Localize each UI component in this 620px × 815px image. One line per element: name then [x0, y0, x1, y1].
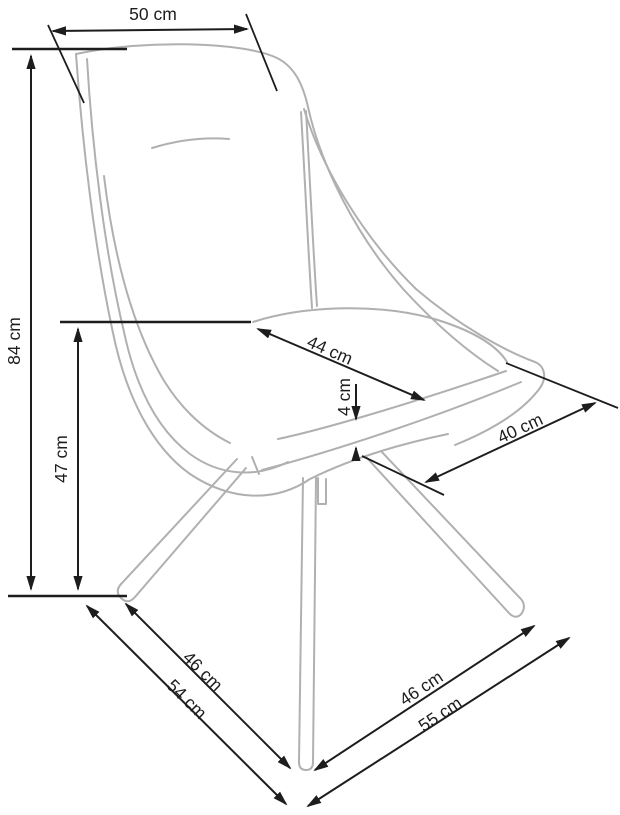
seat-cushion-bottom-seam	[278, 371, 506, 439]
extension-tick-upper	[506, 363, 618, 408]
extension-tick-lower	[362, 456, 444, 495]
armrest-seam	[104, 176, 230, 443]
extension-tick-left	[48, 25, 84, 103]
dim-overall-height: 84 cm	[4, 49, 127, 589]
seat-cushion-top-edge	[253, 308, 507, 362]
diagram-canvas: 50 cm 84 cm 47 cm 44 cm	[0, 0, 620, 815]
chair-dimension-diagram: 50 cm 84 cm 47 cm 44 cm	[0, 0, 620, 815]
dimension-arrow	[315, 626, 534, 770]
dimension-annotations: 50 cm 84 cm 47 cm 44 cm	[4, 4, 618, 806]
dim-label-back-width: 50 cm	[129, 4, 177, 24]
dim-label-seat-height: 47 cm	[51, 435, 71, 483]
dim-label-seat-depth: 40 cm	[494, 409, 546, 447]
dim-seat-height: 47 cm	[8, 322, 251, 596]
dim-base-span-left: 46 cm	[126, 604, 290, 768]
leg-mount-bracket	[318, 478, 326, 504]
backrest-stitch-line	[152, 138, 229, 148]
leg-right	[367, 451, 524, 617]
extension-tick-right	[246, 14, 277, 91]
dim-label-seat-width: 44 cm	[304, 331, 356, 368]
right-wing-seam-outer	[301, 112, 312, 308]
leg-left	[118, 459, 246, 601]
dim-base-diag-left: 54 cm	[87, 606, 286, 804]
dim-base-span-right: 46 cm	[315, 626, 534, 770]
dim-label-overall-height: 84 cm	[4, 317, 24, 365]
leg-front	[299, 478, 316, 770]
dim-label-cushion-thickness: 4 cm	[334, 378, 354, 416]
dimension-arrow	[53, 29, 247, 31]
chair-drawing	[76, 44, 544, 770]
dim-base-diag-right: 55 cm	[308, 638, 569, 806]
